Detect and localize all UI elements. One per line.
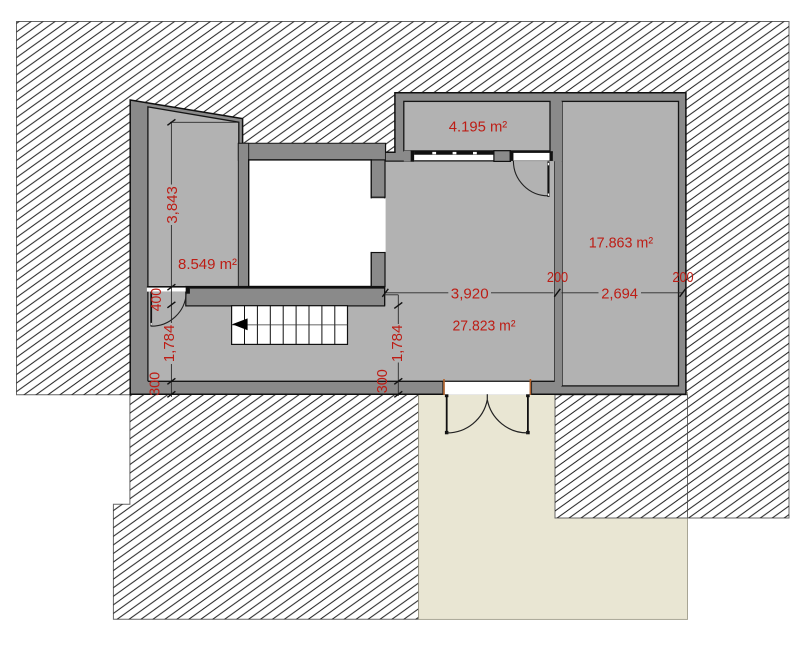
svg-text:2,694: 2,694 [601,286,638,303]
svg-text:1,784: 1,784 [161,325,178,363]
svg-text:300: 300 [146,372,163,396]
svg-text:4.195 m²: 4.195 m² [449,119,508,136]
svg-text:17.863 m²: 17.863 m² [589,235,653,252]
svg-text:300: 300 [374,369,391,393]
svg-text:3,920: 3,920 [451,286,489,303]
svg-text:1,784: 1,784 [389,325,406,363]
svg-text:8.549 m²: 8.549 m² [178,256,237,273]
svg-text:200: 200 [672,269,693,286]
svg-text:3,843: 3,843 [164,186,181,224]
svg-text:27.823 m²: 27.823 m² [453,318,516,335]
svg-text:400: 400 [148,288,165,312]
svg-text:200: 200 [547,269,568,286]
